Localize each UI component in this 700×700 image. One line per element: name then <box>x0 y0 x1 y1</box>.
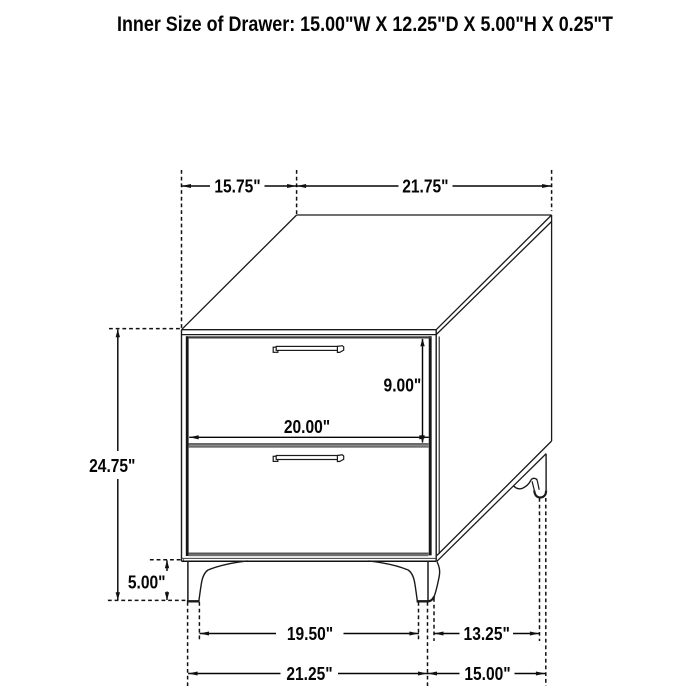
svg-text:5.00": 5.00" <box>128 572 166 593</box>
svg-text:15.75": 15.75" <box>214 175 260 196</box>
svg-text:Inner Size of Drawer: 15.00"W: Inner Size of Drawer: 15.00"W X 12.25"D … <box>117 12 613 36</box>
svg-text:20.00": 20.00" <box>284 416 330 437</box>
svg-text:9.00": 9.00" <box>384 375 422 396</box>
svg-text:13.25": 13.25" <box>464 623 510 644</box>
svg-text:21.25": 21.25" <box>286 663 332 684</box>
svg-text:15.00": 15.00" <box>464 663 510 684</box>
svg-text:21.75": 21.75" <box>402 175 448 196</box>
svg-text:19.50": 19.50" <box>287 623 333 644</box>
svg-text:24.75": 24.75" <box>89 455 135 476</box>
